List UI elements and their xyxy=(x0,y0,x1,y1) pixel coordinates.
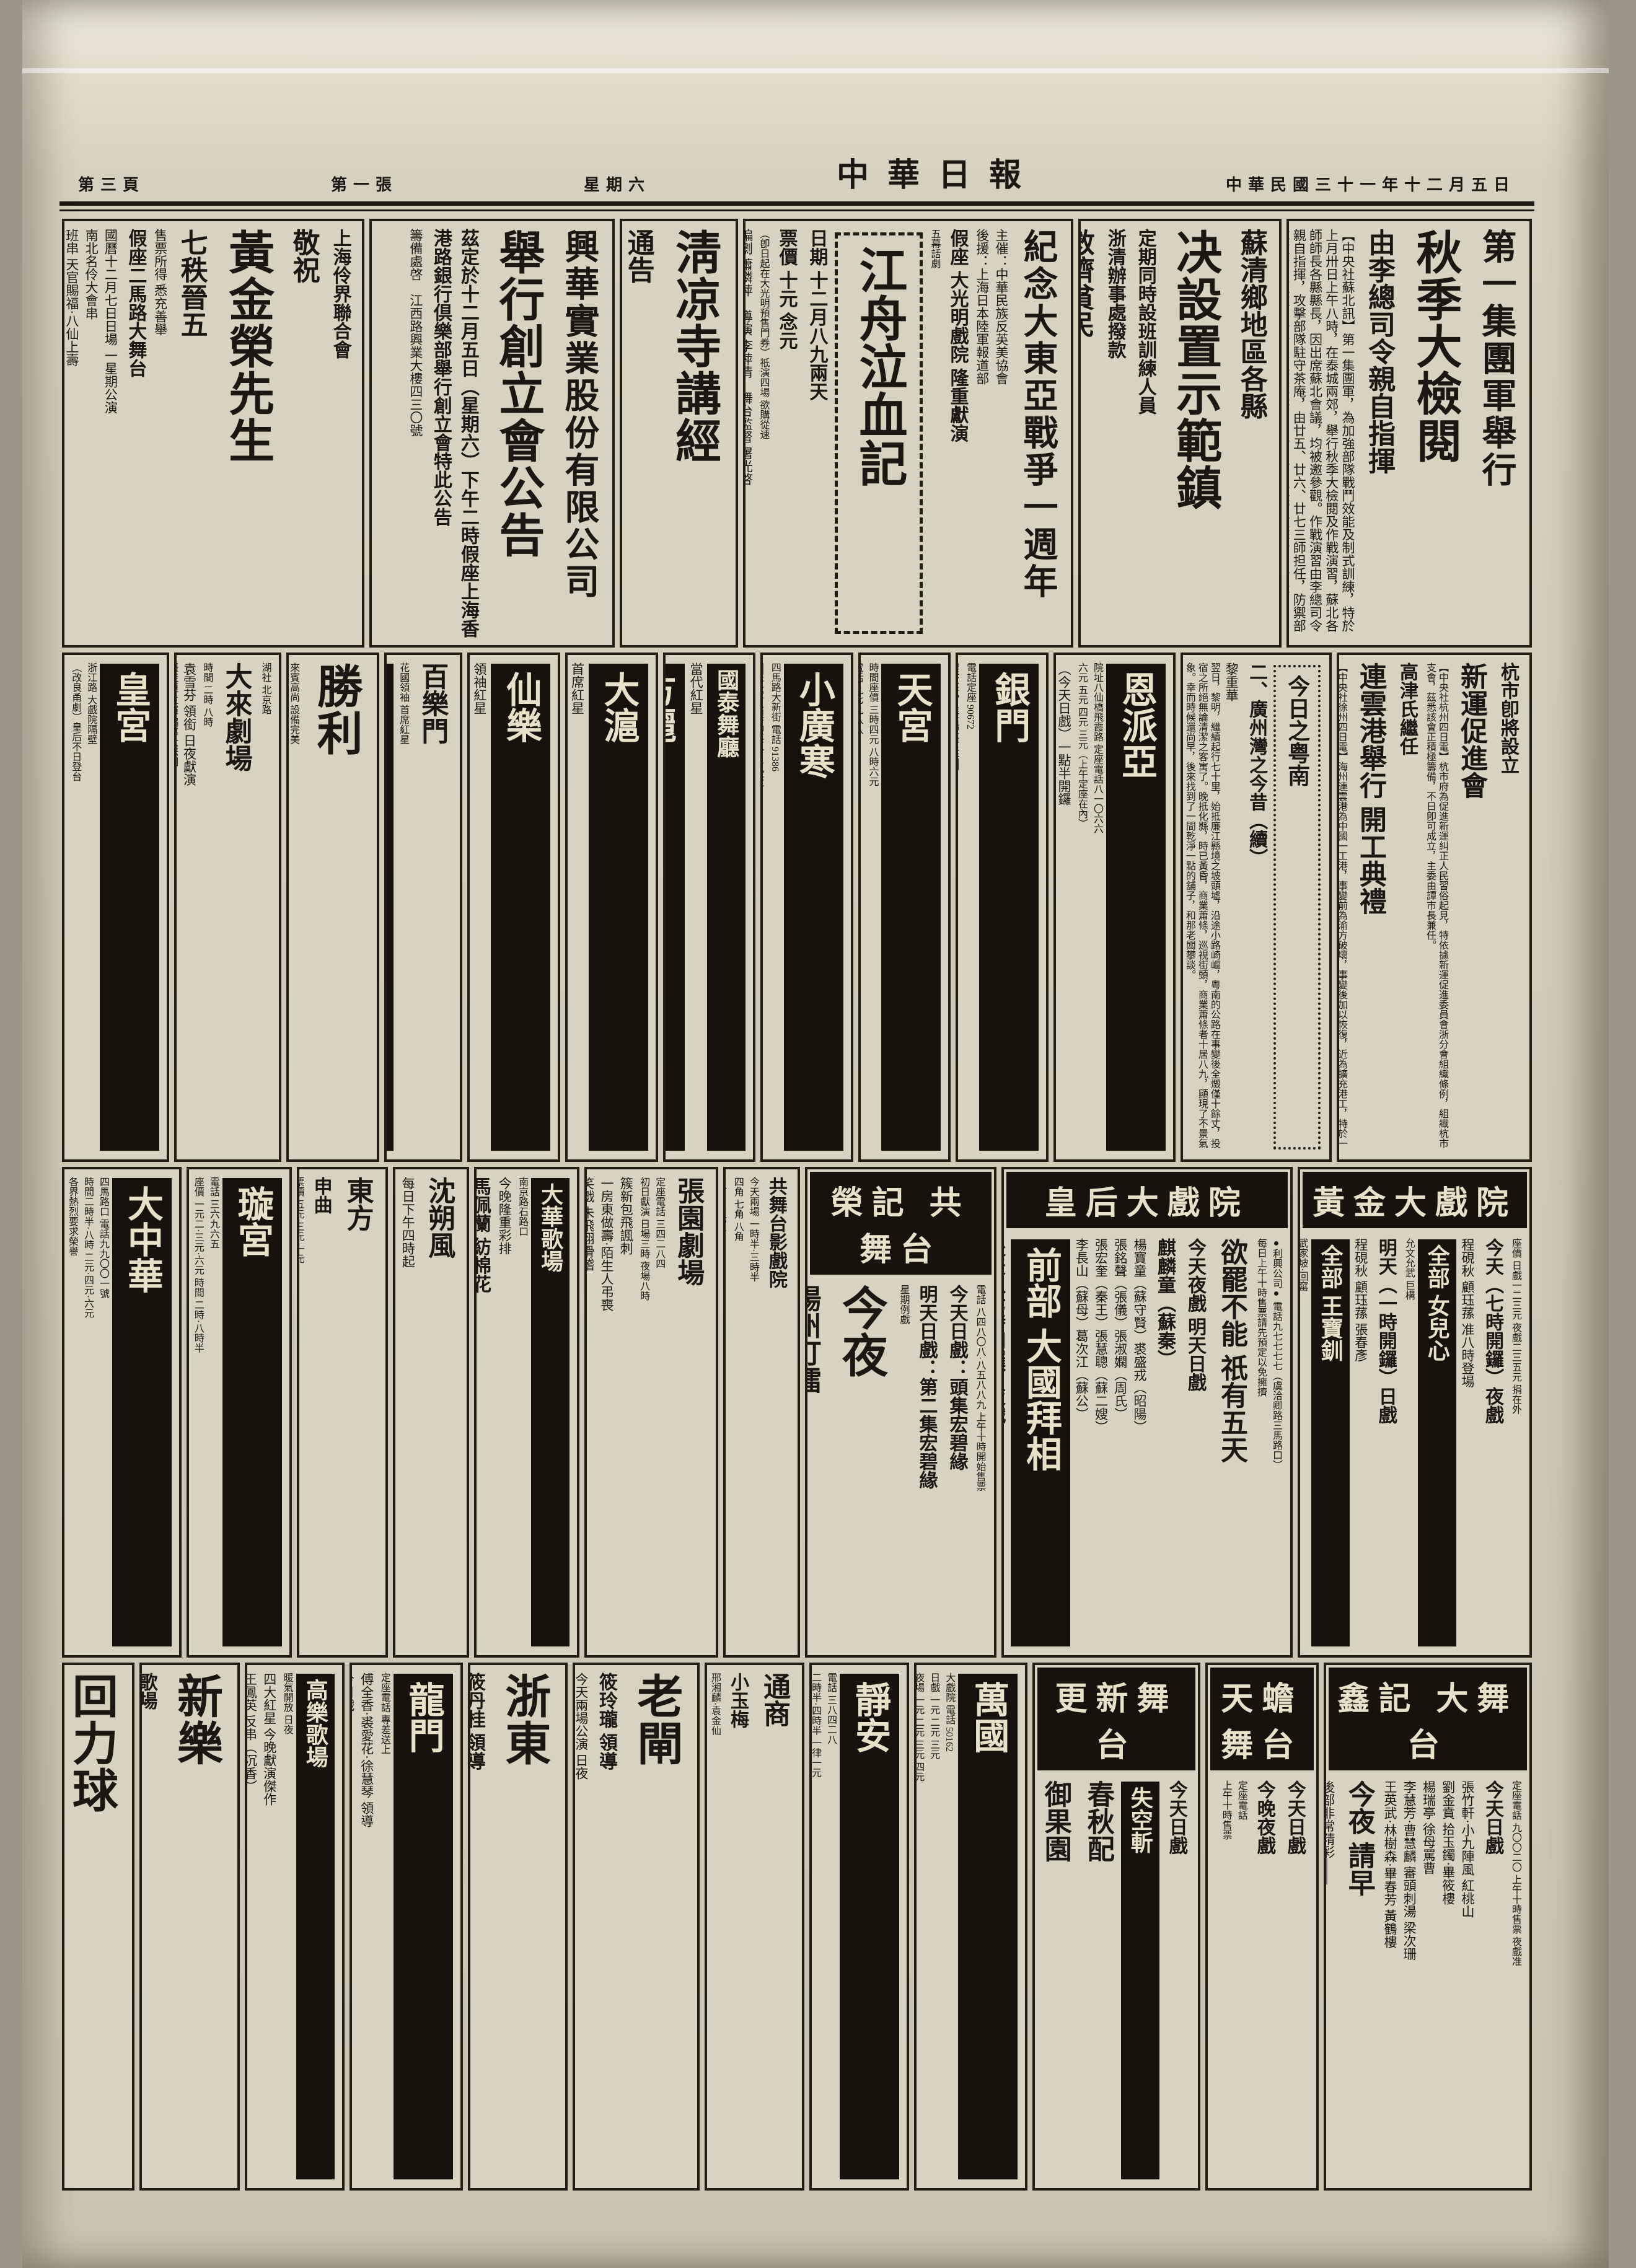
text-line: 夜場 一元 二元 三元 四元 xyxy=(917,1672,924,2181)
text-line: 揚州打擂 xyxy=(807,1285,825,1648)
text-line: 王鳳英 反串（沉香） xyxy=(247,1672,258,2181)
text-line: 全部 女兒心 xyxy=(1418,1239,1456,1646)
ad-body: 座價 日戲一二三元 夜戲二三五元 捐在外今天（七時開鑼）夜戲程硯秋 顧珏蓀 准八… xyxy=(1300,1231,1529,1655)
ad-dalai-theatre: 湖社 北京路大來劇場時間 二時 八時袁雪芬 領銜 日夜獻演張桂蓮 主演 編導大悲… xyxy=(174,653,281,1162)
ad-dazhonghua: 大中華四馬路口 電話九九〇〇一號時間二時半·八時 二元·四元·六元各界熱烈要求榮… xyxy=(62,1167,182,1658)
ad-body: 今天日戲今晚夜戲定座電話上午十時售票 xyxy=(1208,1773,1316,2188)
ad-dahu-ballroom: 大滬首席紅星沈雲霞（小姐）今晚隆重登場 xyxy=(565,653,658,1162)
text-line: 蘇清鄉地區各縣 xyxy=(1231,229,1271,638)
theatre-name-banner: 皇后大戲院 xyxy=(1006,1172,1288,1228)
text-line: 湖社 北京路 xyxy=(258,662,271,1152)
text-line: 籌備處啓 江西路興業大樓四三〇號 xyxy=(408,229,424,638)
paper-title: 中華日報 xyxy=(837,149,1040,195)
text-line: 方麗 xyxy=(666,664,685,1151)
text-line: 班串 天官賜福·八仙上壽 xyxy=(64,229,80,638)
text-line: 歌場 xyxy=(142,1672,159,2181)
theatre-name-banner: 榮記 共舞台 xyxy=(810,1172,992,1275)
text-line: 由李總司令親自指揮 xyxy=(1359,229,1399,638)
text-line: 簇新包飛諷刺 xyxy=(618,1177,634,1648)
text-line: 决設置示範鎮 xyxy=(1162,229,1228,638)
text-line: 浙清辦事處撥款 xyxy=(1101,229,1128,638)
ad-gongwutai-cinema: 共舞台影戲院今天兩場 一時半·三時半四角 七角 八角王引 主演小老虎武俠肉搏 慷… xyxy=(723,1167,800,1658)
text-line: 程硯秋 顧珏蓀 張春彥 xyxy=(1353,1238,1369,1648)
text-line: 新運促進會 xyxy=(1451,662,1491,1152)
text-line: 日戲 一元 二元 三元 xyxy=(927,1672,939,2181)
text-line: 今天夜戲 明天日戲 xyxy=(1181,1238,1208,1648)
text-line: 御果園 xyxy=(1036,1780,1075,2181)
ad-body: 浙東筱丹桂 領導今天日戲多情嫂嫂今夜初演一吻情熱吻·殺人·少女 xyxy=(470,1665,565,2188)
text-line: 今夜 xyxy=(828,1285,894,1648)
newsprint-sheet: 第三頁 第一張 星期六 中華日報 中華民國三十一年十二月五日 第一集團軍舉行秋季… xyxy=(22,0,1609,2268)
text-line: 定期同時設班訓練人員 xyxy=(1132,229,1159,638)
text-line: 張宏奎（秦王）張慧聰（蘇二嫂） xyxy=(1093,1238,1109,1648)
text-line: 茲定於十二月五日（星期六）下午二時假座上海香港路銀行倶樂部舉行創立會特此公告 xyxy=(427,229,482,638)
ad-body: 恩派亞院址八仙橋飛霞路 定座電話八一〇六六六元 五元 四元 三元（上午定座在內）… xyxy=(1056,655,1173,1159)
text-line: 票價 十元 念元 xyxy=(772,229,799,638)
ad-tianchan: 天蟾舞台今天日戲今晚夜戲定座電話上午十時售票 xyxy=(1205,1663,1319,2191)
text-line: 楊瑞亭 徐母罵曹 xyxy=(1420,1780,1436,2181)
ad-xuangong: 璇宮電話 三六九六五座價 一元二·三元·六元 時間 二時·八時半六大名家聯合編導… xyxy=(187,1167,292,1658)
ad-bailemen-lingfang: 百樂門花國領袖 首席紅星玲芳本廳長駐候敎 xyxy=(384,653,462,1162)
news-qingxiang: 蘇清鄉地區各縣决設置示範鎮定期同時設班訓練人員浙清辦事處撥款救濟貧民二期清鄉各區… xyxy=(1078,219,1282,648)
text-line: 沈朔風 xyxy=(419,1177,459,1648)
ad-longmen: 龍門定座電話 專差送上傅全香·裘愛花·徐慧琴 領導今日戲遊庵認母今晚初次公演 時… xyxy=(350,1663,463,2191)
text-line: 新樂 xyxy=(163,1672,229,2181)
ad-jiangzhou-qixueji: 紀念大東亞戰爭一週年主催：中華民族反英美協會後援：上海日本陸軍報道部假座 大光明… xyxy=(743,219,1073,648)
ad-body: 張園劇場定座電話 三四二八四初日獻演 日場三時 夜場八時簇新包飛諷刺一房東做壽·… xyxy=(587,1169,716,1655)
text-line: 璇宮 xyxy=(222,1178,282,1646)
text-line: 四馬路口 電話九九〇〇一號 xyxy=(97,1177,109,1648)
text-line: 筱丹桂 領導 xyxy=(470,1672,488,2181)
text-line: 播送描音 xyxy=(395,1177,397,1648)
text-line: 定座電話 xyxy=(1235,1780,1247,2181)
ad-huanghou-theatre: 皇后大戲院●利興公司● 電話九七七七七（虞洽卿路三馬路口）每日上午十時售票請先預… xyxy=(1001,1167,1293,1658)
text-line: 浙江路 大戲院隔壁 xyxy=(84,662,97,1152)
text-line: 今天（七時開鑼）夜戲 xyxy=(1479,1238,1506,1648)
text-line: 今天日戲 xyxy=(1163,1780,1190,2181)
text-line: 皇宮 xyxy=(100,664,159,1151)
text-line: 舉行創立會公告 xyxy=(485,229,551,638)
text-line: 首席紅星 xyxy=(569,662,585,1152)
text-line: 座價 日戲一二三元 夜戲二三五元 捐在外 xyxy=(1509,1238,1521,1648)
ad-body: 高樂歌場暖氣開放 日夜四大紅星 今晚獻演傑作王鳳英 反串（沉香）兪萍 飾（劉彥昌… xyxy=(247,1665,342,2188)
ad-dahua-gechang: 大華歌場南京路石路口今晚隆重彩排馬佩蘭 紡棉花陳玉 羅成叫關明晚特別節目華君 滑… xyxy=(474,1167,579,1658)
theatre-name-banner: 天蟾舞台 xyxy=(1210,1668,1314,1770)
text-line: 花國領袖 首席紅星 xyxy=(397,662,409,1152)
text-line: 萬國 xyxy=(958,1674,1018,2179)
text-line: 淸凉寺講經 xyxy=(661,229,728,638)
ad-body: 天宮時間座價 三時四元 八時六元電話 九七九八八江笑笑 領導今天 隆重獻演瞎子借… xyxy=(861,655,949,1159)
ad-body: 今天日戲失空斬春秋配御果園今晚夜戲探母寶釧王魁田菊林·周又宸·李秀英 xyxy=(1035,1773,1198,2188)
text-line: 售票所得 悉充善舉 xyxy=(152,229,168,638)
text-line: 金翠香 領導 xyxy=(64,662,66,1152)
text-line: 李慧芳·曹慧麟 審頭刺湯 梁次珊 xyxy=(1401,1780,1417,2181)
ad-body: 紀念大東亞戰爭一週年主催：中華民族反英美協會後援：上海日本陸軍報道部假座 大光明… xyxy=(745,221,1071,645)
ad-body: 皇宮浙江路 大戲院隔壁（改良甬劇）皇后不日登台金翠香 領導孫榮芳·筱原仙·柴鴻茂… xyxy=(64,655,167,1159)
masthead: 第三頁 第一張 星期六 中華日報 中華民國三十一年十二月五日 xyxy=(59,149,1534,201)
weekday-label: 星期六 xyxy=(584,172,651,195)
text-line: 楊寶童（蘇守賢）裘盛戎（昭陽） xyxy=(1132,1238,1148,1648)
ad-body: 萬國大戲院 電話 50162日戲 一元 二元 三元夜場 一元 二元 三元 四元虹… xyxy=(917,1665,1025,2188)
text-line: 大滬 xyxy=(589,664,648,1151)
ad-body: 靜安電話 三八四二八二時半·四時半 一律一元挽留一天夏佩珍【上下兩集】一百十場客… xyxy=(812,1665,907,2188)
text-line: 今夜 請早 xyxy=(1339,1780,1379,2181)
text-line: 傅全香·裘愛花·徐慧琴 領導 xyxy=(359,1672,375,2181)
news-column: 杭市卽將設立新運促進會【中央社杭州四日電】杭市府為促進新運糾正人民習俗起見，特依… xyxy=(1337,653,1532,1162)
text-line: 二時半·四時半 一律一元 xyxy=(812,1672,821,2181)
text-line: 七秩晉五 xyxy=(172,229,211,638)
text-line: 上午十時售票 xyxy=(1220,1780,1232,2181)
text-line: 龍門 xyxy=(394,1674,453,2179)
text-line: 程硯秋 顧珏蓀 准八時登場 xyxy=(1459,1238,1475,1648)
text-line: 回力球 xyxy=(64,1672,124,2181)
ad-body: 第一集團軍舉行秋季大檢閱由李總司令親自指揮【中央社蘇北訊】第一集團軍，為加強部隊… xyxy=(1289,221,1529,645)
ad-xianle-ballroom: 仙樂領袖紅星俞雪莉不日加入晚舞候敎 xyxy=(467,653,560,1162)
text-line: 假座 大光明戲院 隆重獻演 xyxy=(943,229,970,638)
text-line: 電話 三六九六五 xyxy=(207,1177,219,1648)
text-line: 劉金賁 拾玉鐲·畢筱樓 xyxy=(1440,1780,1456,2181)
text-line: 來賓高尚 設備完美 xyxy=(289,662,299,1152)
text-line: ●利興公司● 電話九七七七七（虞洽卿路三馬路口） xyxy=(1270,1238,1282,1648)
text-line: 銀門 xyxy=(979,664,1039,1151)
theatre-name-banner: 鑫記 大舞台 xyxy=(1329,1668,1527,1770)
ad-wanguo: 萬國大戲院 電話 50162日戲 一元 二元 三元夜場 一元 二元 三元 四元虹… xyxy=(914,1663,1027,2191)
text-line: 明天（一時開鑼）日戲 xyxy=(1372,1238,1399,1648)
text-line: 杭市卽將設立 xyxy=(1494,662,1521,1152)
ad-body: 東方申曲票價 五元 三元 一元時間 二時 八時半鳴英劇團 今天公演現代申曲陸雅臣… xyxy=(299,1169,385,1655)
text-line: 大中華 xyxy=(112,1178,172,1646)
text-line: 劉筱雲·趙福海 打花鼓 xyxy=(763,662,765,1152)
text-line: 麒麟童（蘇秦） xyxy=(1151,1238,1178,1648)
text-line: 筱玲瓏 領導 xyxy=(592,1672,620,2181)
ad-laozha: 老閘筱玲瓏 領導今天兩場公演 日夜二本大紅袍老戲重排 去蕪存菁人人稱好 個個道妙… xyxy=(573,1663,700,2191)
masthead-rule xyxy=(59,201,1534,211)
text-line: 黃金榮先生 xyxy=(214,229,281,638)
text-line: 南北名伶大會串 xyxy=(83,229,99,638)
text-line: 勝利 xyxy=(302,662,369,1152)
ad-shengli-ballroom: 勝利來賓高尚 設備完美為小型舞場中權威暖氣開放 温暖如春兩時開始茶舞 奉送香茗 … xyxy=(286,653,379,1162)
text-line: 今天日戲：頭集宏碧緣 xyxy=(943,1285,970,1648)
text-line: 時間座價 三時四元 八時六元 xyxy=(866,662,878,1152)
text-line: 仙樂 xyxy=(491,664,550,1151)
text-line: 四大紅星 今晚獻演傑作 xyxy=(261,1672,277,2181)
ad-body: 今日之粤南二、廣州灣之今昔（續）黎重華翌日，黎明，繼續起行七十里，始抵廉江縣境之… xyxy=(1183,655,1329,1159)
text-line: 允文允武 巨構 xyxy=(1402,1238,1415,1648)
text-line: 靜安 xyxy=(840,1674,899,2179)
text-line: 欲罷不能 祇有五天 xyxy=(1212,1238,1251,1648)
text-line: 時間 二時 八時 xyxy=(200,662,213,1152)
text-line: 暖氣開放 日夜 xyxy=(281,1672,293,2181)
text-line: 座價 一元二·三元·六元 時間 二時·八時半 xyxy=(191,1177,204,1648)
text-line: 當代紅星 xyxy=(688,662,704,1152)
text-line: 星期例戲 xyxy=(897,1285,910,1648)
text-line: 連雲港舉行 開工典禮 xyxy=(1350,662,1390,1152)
news-autumn-review: 第一集團軍舉行秋季大檢閱由李總司令親自指揮【中央社蘇北訊】第一集團軍，為加強部隊… xyxy=(1286,219,1532,648)
ad-body: 銀門電話定座 90672程笑亭·裴揚華佳劇今天日夜隆重獻演二本小山東到上海李竹庵… xyxy=(958,655,1046,1159)
text-line: 江舟泣血記 xyxy=(835,232,923,634)
ad-body: 百樂門花國領袖 首席紅星玲芳本廳長駐候敎 xyxy=(387,655,460,1159)
band-1: 第一集團軍舉行秋季大檢閱由李總司令親自指揮【中央社蘇北訊】第一集團軍，為加強部隊… xyxy=(59,216,1534,650)
ad-guotai-ballroom: 國泰舞廳當代紅星方麗今晚隆重登場周美珍王玉玲二大紅星 今日茶舞候敎 xyxy=(663,653,756,1162)
serial-yue-nan: 今日之粤南二、廣州灣之今昔（續）黎重華翌日，黎明，繼續起行七十里，始抵廉江縣境之… xyxy=(1181,653,1332,1162)
text-line: 東方 xyxy=(338,1177,377,1648)
ad-body: 興華實業股份有限公司舉行創立會公告茲定於十二月五日（星期六）下午二時假座上海香港… xyxy=(372,221,612,645)
ad-huanggong: 皇宮浙江路 大戲院隔壁（改良甬劇）皇后不日登台金翠香 領導孫榮芳·筱原仙·柴鴻茂… xyxy=(62,653,169,1162)
text-line: 小玉梅 xyxy=(724,1672,751,2181)
text-line: 邢湘麟·袁金仙 xyxy=(708,1672,721,2181)
ad-tiangong: 天宮時間座價 三時四元 八時六元電話 九七九八八江笑笑 領導今天 隆重獻演瞎子借… xyxy=(858,653,951,1162)
text-line: 南京路石路口 xyxy=(516,1177,528,1648)
text-line: 天宮 xyxy=(881,664,941,1151)
text-line: 前部 大國拜相 xyxy=(1011,1239,1070,1646)
text-line: 高津氏繼任 xyxy=(1393,662,1420,1152)
text-line: 主催：中華民族反英美協會 xyxy=(993,229,1009,638)
text-line: 張園劇場 xyxy=(668,1177,708,1648)
text-line: 電話定座 90672 xyxy=(964,662,976,1152)
text-line: 武家坡·回窰 xyxy=(1300,1238,1308,1648)
text-line: （卽日起在大光明預售門券）祗演四場 欲購從速 xyxy=(757,229,769,638)
text-line: 全部 王寶釧 xyxy=(1311,1239,1350,1646)
ad-qingliangsi: 淸凉寺講經通告啓建水陸道場三七日祈禱世界和平超薦陣亡將士度脫橫死難民屆時蒞臨隨喜… xyxy=(620,219,738,648)
text-line: 恩派亞 xyxy=(1106,664,1166,1151)
text-line: 張竹軒·小九陣風 紅桃山 xyxy=(1459,1780,1475,2181)
text-line: 日期 十二月八九兩天 xyxy=(803,229,830,638)
text-line: 【中央社杭州四日電】杭市府為促進新運糾正人民習俗起見，特依據新運促進委員會浙分會… xyxy=(1423,662,1448,1152)
text-line: 時間二時半·八時 二元·四元·六元 xyxy=(81,1177,94,1648)
text-line: （今天日戲）一點半開鑼 xyxy=(1056,662,1072,1152)
ad-body: 大中華四馬路口 電話九九〇〇一號時間二時半·八時 二元·四元·六元各界熱烈要求榮… xyxy=(64,1169,179,1655)
text-line: 翌日，黎明，繼續起行七十里，始抵廉江縣境之坡頭墟，沿途小路崎嶇，粤南的公路在事變… xyxy=(1183,662,1220,1152)
text-line: 後部非常精彩—— xyxy=(1326,1780,1336,2181)
text-line: 【中央社徐州四日電】海州連雲港為中國一工港，事變前為渝方破壞，事變後加以恢復，近… xyxy=(1339,662,1347,1152)
text-line: 定座電話 九〇〇二〇 上午十時售票 夜戲准 xyxy=(1509,1780,1521,2181)
ad-dawutai: 鑫記 大舞台定座電話 九〇〇二〇 上午十時售票 夜戲准今天日戲張竹軒·小九陣風 … xyxy=(1324,1663,1532,2191)
text-line: 電話 九七九八八 xyxy=(861,662,863,1152)
text-line: 百樂門 xyxy=(412,662,452,1152)
text-line: 袁雪芬 領銜 日夜獻演 xyxy=(181,662,197,1152)
ad-body: 電話 八四八〇八·八五八八九 上午十時開始售票今天日戲：頭集宏碧緣明天日戲：第二… xyxy=(807,1277,994,1655)
text-line: 笑戲 朱飛翔滑稽 xyxy=(587,1177,596,1648)
ad-body: 小廣寒四馬路大新街 電話 91386劉筱雲·趙福海 打花鼓周金玉·吳桂芬·王奎官… xyxy=(763,655,851,1159)
ad-zhedong: 浙東筱丹桂 領導今天日戲多情嫂嫂今夜初演一吻情熱吻·殺人·少女 xyxy=(468,1663,568,2191)
text-line: 張桂蓮 主演 編導大悲劇 xyxy=(177,662,178,1152)
text-line: 大戲院 電話 50162 xyxy=(943,1672,955,2181)
ad-body: 上海伶界聯合會敬祝黃金榮先生七秩晉五售票所得 悉充善舉假座二馬路大舞台國曆十二月… xyxy=(64,221,362,645)
text-line: 一房東做壽·陌生人弔喪 xyxy=(599,1177,615,1648)
ad-huiliqiu: 回力球今天日場三時半起賽單打·雙打 xyxy=(62,1663,134,2191)
text-line: 申曲 xyxy=(307,1177,335,1648)
text-line: 六元 五元 四元 三元（上午定座在內） xyxy=(1075,662,1088,1152)
text-line: 秋季大檢閱 xyxy=(1402,229,1468,638)
ad-body: 回力球今天日場三時半起賽單打·雙打 xyxy=(64,1665,132,2188)
page-number: 第三頁 xyxy=(78,172,145,195)
text-line: 二、廣州灣之今昔（續） xyxy=(1242,662,1270,1152)
text-line: 電話 三八四二八 xyxy=(824,1672,837,2181)
text-line: 高樂歌場 xyxy=(296,1674,335,2179)
theatre-name-banner: 更新舞台 xyxy=(1037,1668,1195,1770)
text-line: 第一集團軍舉行 xyxy=(1471,229,1521,638)
text-line: 今天日戲 xyxy=(1281,1780,1308,2181)
text-line: 今晚夜戲 xyxy=(1251,1780,1278,2181)
ad-body: ●利興公司● 電話九七七七七（虞洽卿路三馬路口）每日上午十時售票請先預定以免擁擠… xyxy=(1004,1231,1291,1655)
text-line: 院址八仙橋飛霞路 定座電話八一〇六六 xyxy=(1091,662,1103,1152)
text-line: 今日戲 xyxy=(352,1672,356,2181)
text-line: 張銘聲（張儀）張淑嫻（周氏） xyxy=(1112,1238,1128,1648)
text-line: 王英武·林樹森·畢春芳 黃鶴樓 xyxy=(1382,1780,1398,2181)
ad-gongwutai: 榮記 共舞台電話 八四八〇八·八五八八九 上午十時開始售票今天日戲：頭集宏碧緣明… xyxy=(805,1167,996,1658)
ad-meirenxin-radio: 沈朔風每日下午四時起播送描音美人心週波五七電話 63032敬請每日收聽 xyxy=(393,1167,470,1658)
text-line: 失空斬 xyxy=(1121,1782,1159,2179)
text-line: 【中央社蘇北訊】第一集團軍，為加強部隊戰鬥效能及制式訓練，特於上月卅日上午八時，… xyxy=(1289,229,1356,638)
ad-zhangyuan: 張園劇場定座電話 三四二八四初日獻演 日場三時 夜場八時簇新包飛諷刺一房東做壽·… xyxy=(584,1167,718,1658)
text-line: 大華歌場 xyxy=(531,1178,570,1646)
text-line: 今天日戲 xyxy=(1479,1780,1506,2181)
text-line: 馬佩蘭 紡棉花 xyxy=(477,1177,493,1648)
newspaper-page: 第三頁 第一張 星期六 中華日報 中華民國三十一年十二月五日 第一集團軍舉行秋季… xyxy=(0,0,1636,2268)
text-line: 四馬路大新街 電話 91386 xyxy=(768,662,781,1152)
text-line: 每日上午十時售票請先預定以免擁擠 xyxy=(1254,1238,1267,1648)
text-line: 李長山（蘇母）葛次江（蘇公） xyxy=(1073,1238,1089,1648)
ad-tongshang: 通商小玉梅邢湘麟·袁金仙今天日戲 後本孟麗君三美洞房團圓今夜首度隆重公演何日君再… xyxy=(705,1663,804,2191)
ad-body: 沈朔風每日下午四時起播送描音美人心週波五七電話 63032敬請每日收聽 xyxy=(395,1169,467,1655)
ad-body: 璇宮電話 三六九六五座價 一元二·三元·六元 時間 二時·八時半六大名家聯合編導… xyxy=(189,1169,289,1655)
text-line: 紀念大東亞戰爭一週年 xyxy=(1013,229,1063,638)
ad-jingan: 靜安電話 三八四二八二時半·四時半 一律一元挽留一天夏佩珍【上下兩集】一百十場客… xyxy=(809,1663,909,2191)
text-line: 黎重華 xyxy=(1223,662,1239,1152)
text-line: 今日之粤南 xyxy=(1273,665,1321,1149)
ad-body: 淸凉寺講經通告啓建水陸道場三七日祈禱世界和平超薦陣亡將士度脫橫死難民屆時蒞臨隨喜… xyxy=(622,221,736,645)
text-line: 浙東 xyxy=(491,1672,557,2181)
ad-xinghua-shiye: 興華實業股份有限公司舉行創立會公告茲定於十二月五日（星期六）下午二時假座上海香港… xyxy=(369,219,615,648)
text-line: 玲芳 xyxy=(387,664,394,1151)
paper-fold xyxy=(22,68,1609,73)
ad-dongfang: 東方申曲票價 五元 三元 一元時間 二時 八時半鳴英劇團 今天公演現代申曲陸雅臣… xyxy=(297,1167,388,1658)
text-line: 領袖紅星 xyxy=(472,662,488,1152)
text-line: 興華實業股份有限公司 xyxy=(554,229,604,638)
ad-body: 大華歌場南京路石路口今晚隆重彩排馬佩蘭 紡棉花陳玉 羅成叫關明晚特別節目華君 滑… xyxy=(477,1169,577,1655)
ad-body: 共舞台影戲院今天兩場 一時半·三時半四角 七角 八角王引 主演小老虎武俠肉搏 慷… xyxy=(726,1169,798,1655)
ad-body: 大滬首席紅星沈雲霞（小姐）今晚隆重登場 xyxy=(568,655,656,1159)
ad-body: 杭市卽將設立新運促進會【中央社杭州四日電】杭市府為促進新運糾正人民習俗起見，特依… xyxy=(1339,655,1529,1159)
text-line: 大來劇場 xyxy=(216,662,255,1152)
paper-date: 中華民國三十一年十二月五日 xyxy=(1226,172,1516,195)
text-line: 今晚隆重彩排 xyxy=(496,1177,512,1648)
ad-bands: 第一集團軍舉行秋季大檢閱由李總司令親自指揮【中央社蘇北訊】第一集團軍，為加強部隊… xyxy=(59,216,1534,2193)
text-line: 老閘 xyxy=(623,1672,689,2181)
ad-body: 通商小玉梅邢湘麟·袁金仙今天日戲 後本孟麗君三美洞房團圓今夜首度隆重公演何日君再… xyxy=(707,1665,802,2188)
theatre-name-banner: 黃金大戲院 xyxy=(1303,1172,1527,1228)
ad-body: 新樂歌場電話 九一一二〇每晚七時開始 香茗一元五角隆重彩排今晚 當代美人蓉蝶·王… xyxy=(142,1665,237,2188)
ad-yinmen: 銀門電話定座 90672程笑亭·裴揚華佳劇今天日夜隆重獻演二本小山東到上海李竹庵… xyxy=(956,653,1049,1162)
text-line: 定座電話 三四二八四 xyxy=(653,1177,665,1648)
text-line: 敬祝 xyxy=(284,229,323,638)
text-line: 編劇 蕭憐萍 導演 李萍倩 舞台監督 屠光啓 xyxy=(745,229,754,638)
text-line: 四角 七角 八角 xyxy=(731,1177,744,1648)
ad-body: 龍門定座電話 專差送上傅全香·裘愛花·徐慧琴 領導今日戲遊庵認母今晚初次公演 時… xyxy=(352,1665,460,2188)
ad-body: 湖社 北京路大來劇場時間 二時 八時袁雪芬 領銜 日夜獻演張桂蓮 主演 編導大悲… xyxy=(177,655,279,1159)
text-line: 王引 主演 xyxy=(726,1177,728,1648)
ad-empire-theatre: 恩派亞院址八仙橋飛霞路 定座電話八一〇六六六元 五元 四元 三元（上午定座在內）… xyxy=(1053,653,1176,1162)
text-line: 國曆十二月七日日場 一星期公演 xyxy=(102,229,118,638)
text-line: 程笑亭·裴揚華佳劇 xyxy=(958,662,961,1152)
ad-body: 定座電話 九〇〇二〇 上午十時售票 夜戲准今天日戲張竹軒·小九陣風 紅桃山劉金賁… xyxy=(1326,1773,1529,2188)
text-line: 今天兩場公演 日夜 xyxy=(575,1672,589,2181)
ad-body: 仙樂領袖紅星俞雪莉不日加入晚舞候敎 xyxy=(470,655,558,1159)
edition-label: 第一張 xyxy=(331,172,398,195)
text-line: 假座二馬路大舞台 xyxy=(121,229,149,638)
ad-gengxin: 更新舞台今天日戲失空斬春秋配御果園今晚夜戲探母寶釧王魁田菊林·周又宸·李秀英 xyxy=(1032,1663,1200,2191)
text-line: 救濟貧民 xyxy=(1081,229,1098,638)
ad-huangjin-theatre: 黃金大戲院座價 日戲一二三元 夜戲二三五元 捐在外今天（七時開鑼）夜戲程硯秋 顧… xyxy=(1298,1167,1532,1658)
text-line: 春秋配 xyxy=(1078,1780,1118,2181)
text-line: 小廣寒 xyxy=(784,664,843,1151)
text-line: （改良甬劇）皇后不日登台 xyxy=(69,662,81,1152)
ad-huangjinrong-birthday: 上海伶界聯合會敬祝黃金榮先生七秩晉五售票所得 悉充善舉假座二馬路大舞台國曆十二月… xyxy=(62,219,364,648)
text-line: 初日獻演 日場三時 夜場八時 xyxy=(637,1177,649,1648)
text-line: 每日下午四時起 xyxy=(400,1177,416,1648)
text-line: 後援：上海日本陸軍報道部 xyxy=(974,229,990,638)
text-line: 國泰舞廳 xyxy=(707,664,745,1151)
ad-gaole: 高樂歌場暖氣開放 日夜四大紅星 今晚獻演傑作王鳳英 反串（沉香）兪萍 飾（劉彥昌… xyxy=(245,1663,345,2191)
text-line: 後天（七時開鑼）夜戲 xyxy=(1004,1238,1008,1648)
text-line: 通商 xyxy=(754,1672,794,2181)
text-line: 定座電話 專差送上 xyxy=(378,1672,390,2181)
band-4: 鑫記 大舞台定座電話 九〇〇二〇 上午十時售票 夜戲准今天日戲張竹軒·小九陣風 … xyxy=(59,1660,1534,2193)
ad-body: 老閘筱玲瓏 領導今天兩場公演 日夜二本大紅袍老戲重排 去蕪存菁人人稱好 個個道妙… xyxy=(575,1665,697,2188)
text-line: 票價 五元 三元 一元 xyxy=(299,1177,304,1648)
page-content: 第三頁 第一張 星期六 中華日報 中華民國三十一年十二月五日 第一集團軍舉行秋季… xyxy=(59,149,1534,2193)
text-line: 電話 八四八〇八·八五八八九 上午十時開始售票 xyxy=(974,1285,986,1648)
text-line: 各界熱烈要求榮譽 xyxy=(66,1177,78,1648)
ad-body: 國泰舞廳當代紅星方麗今晚隆重登場周美珍王玉玲二大紅星 今日茶舞候敎 xyxy=(666,655,754,1159)
text-line: 明天日戲：第二集宏碧緣 xyxy=(913,1285,940,1648)
text-line: 上海伶界聯合會 xyxy=(327,229,354,638)
ad-xinle: 新樂歌場電話 九一一二〇每晚七時開始 香茗一元五角隆重彩排今晚 當代美人蓉蝶·王… xyxy=(139,1663,239,2191)
text-line: 五幕話劇 xyxy=(928,229,940,638)
ad-body: 蘇清鄉地區各縣决設置示範鎮定期同時設班訓練人員浙清辦事處撥款救濟貧民二期清鄉各區… xyxy=(1081,221,1279,645)
text-line: 今天兩場 一時半·三時半 xyxy=(747,1177,759,1648)
text-line: 共舞台影戲院 xyxy=(762,1177,789,1648)
ad-xiaoguanghan: 小廣寒四馬路大新街 電話 91386劉筱雲·趙福海 打花鼓周金玉·吳桂芬·王奎官… xyxy=(760,653,853,1162)
ad-body: 勝利來賓高尚 設備完美為小型舞場中權威暖氣開放 温暖如春兩時開始茶舞 奉送香茗 … xyxy=(289,655,377,1159)
text-line: 通告 xyxy=(622,229,658,638)
band-3: 黃金大戲院座價 日戲一二三元 夜戲二三五元 捐在外今天（七時開鑼）夜戲程硯秋 顧… xyxy=(59,1164,1534,1660)
band-2: 杭市卽將設立新運促進會【中央社杭州四日電】杭市府為促進新運糾正人民習俗起見，特依… xyxy=(59,650,1534,1164)
